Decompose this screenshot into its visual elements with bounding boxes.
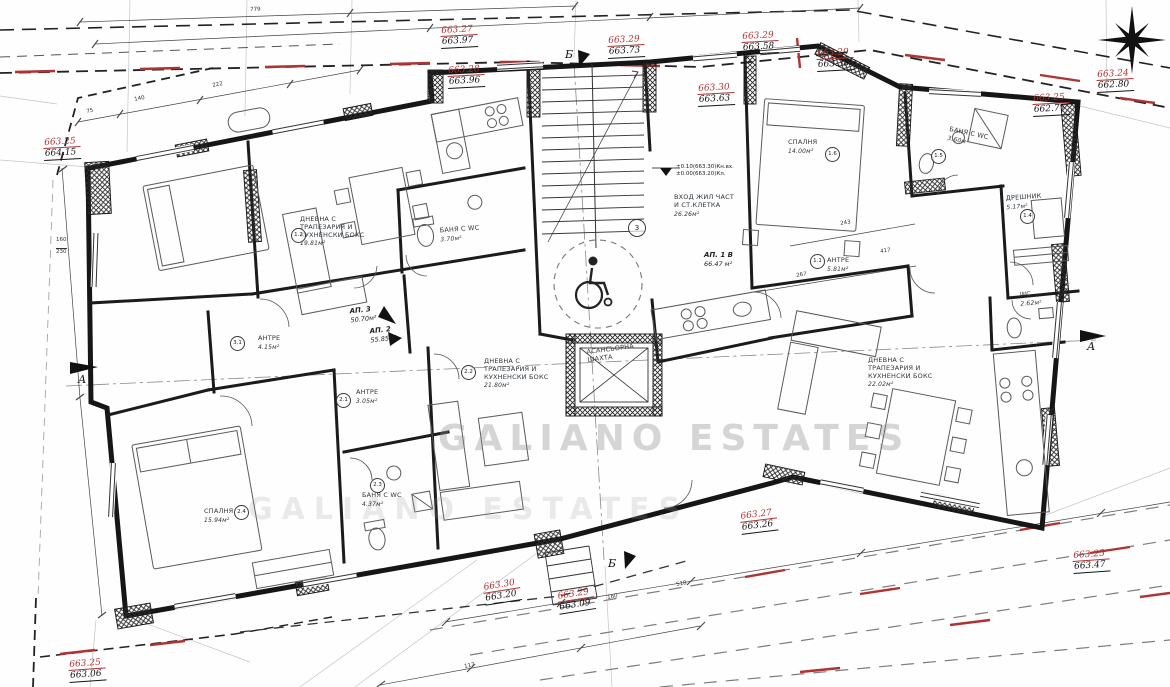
- room-name-line: БАНЯ С WC: [362, 492, 402, 500]
- apartment-label-2: АП. 2 55.85м²: [369, 325, 397, 345]
- room-name-line: WC: [1019, 290, 1041, 299]
- room-label-wc-e: WC 2.62м²: [1019, 290, 1042, 307]
- room-area: 5.81м²: [827, 266, 849, 273]
- level-note: ±0.10(663.30)Кн.вх. ±0.00(663.20)Кл.: [676, 164, 734, 178]
- room-number-circle: 1.2: [291, 228, 306, 243]
- room-label-living-nw: ДНЕВНА С ТРАПЕЗАРИЯ И КУХНЕНСКИ БОКС 19.…: [300, 216, 365, 248]
- room-number-circle: 1.5: [931, 149, 946, 164]
- room-name-line: СПАЛНЯ: [788, 139, 817, 147]
- stairs: [542, 64, 644, 248]
- elevation-marker: 663.25664.15: [43, 136, 81, 161]
- apartment-area: 66.47 м²: [704, 260, 733, 268]
- room-area: 4.37м²: [362, 501, 402, 508]
- room-label-hall-c: АНТРЕ 3.05м²: [356, 389, 378, 405]
- level-line: ±0.10(663.30)Кн.вх.: [676, 164, 734, 171]
- room-area: 21.80м²: [484, 382, 549, 389]
- elevation-lower: 662.77: [1033, 103, 1070, 116]
- room-number-circle: 1.1: [810, 254, 825, 269]
- dimension-label: 230: [56, 248, 67, 256]
- elevation-lower: 663.97: [441, 35, 478, 48]
- elevation-marker: 663.27663.26: [739, 508, 778, 535]
- room-number-circle: 1.4: [1020, 209, 1035, 224]
- elevation-marker: 663.29663.38: [816, 47, 854, 72]
- room-number-circle: 2.3: [370, 478, 385, 493]
- watermark-line2: GALIANO ESTATES: [248, 492, 689, 527]
- room-label-bedroom-ne: СПАЛНЯ 14.00м²: [788, 139, 817, 155]
- axis-letter-b-bottom: Б: [608, 558, 616, 569]
- elevation-lower: 662.80: [1097, 79, 1134, 92]
- elevation-lower: 663.58: [742, 41, 779, 54]
- room-name-line: КУХНЕНСКИ БОКС: [300, 232, 365, 240]
- room-area: 4.15м²: [258, 344, 280, 351]
- elevation-marker: 663.25663.06: [68, 657, 106, 682]
- room-area: 15.94м²: [204, 517, 233, 524]
- axis-letter-a-right: А: [1087, 341, 1095, 352]
- room-area: 22.02м²: [868, 381, 933, 388]
- elevation-marker: 663.28663.96: [447, 64, 485, 89]
- apartment-name: АП. 1 В: [704, 251, 733, 260]
- construction-lines: [0, 0, 1170, 687]
- room-label-entrance: ВХОД ЖИЛ ЧАСТ И СТ.КЛЕТКА 26.26м²: [674, 194, 734, 218]
- wheelchair-icon: [554, 240, 642, 328]
- room-label-hall-e: АНТРЕ 5.81м²: [827, 257, 849, 273]
- room-label-bath-sw: БАНЯ С WC 4.37м²: [362, 492, 402, 508]
- room-number-circle: 2.4: [234, 505, 249, 520]
- elevation-marker: 663.25662.77: [1032, 92, 1070, 117]
- elevation-marker: 663.29663.73: [607, 34, 645, 59]
- room-label-hall-w: АНТРЕ 4.15м²: [258, 335, 280, 351]
- elevation-marker: 663.29663.58: [741, 30, 779, 55]
- room-number-circle: 3: [628, 219, 646, 237]
- room-area: 14.00м²: [788, 148, 817, 155]
- room-name-line: АНТРЕ: [258, 335, 280, 343]
- dimension-label: 160: [56, 238, 67, 244]
- elevation-marker: 663.27663.97: [440, 24, 478, 49]
- elevation-lower: 663.73: [608, 45, 645, 58]
- room-number-circle: 1.6: [825, 147, 840, 162]
- elevation-lower: 663.96: [448, 75, 485, 88]
- floorplan-canvas: GALIANO ESTATES GALIANO ESTATES ДНЕВНА С…: [0, 0, 1170, 687]
- room-area: 2.62м²: [1020, 299, 1042, 308]
- room-area: 19.81м²: [300, 240, 365, 247]
- room-name-line: КУХНЕНСКИ БОКС: [868, 373, 933, 381]
- room-name-line: АНТРЕ: [356, 389, 378, 397]
- room-number-circle: 2.2: [461, 365, 476, 380]
- room-number-circle: 2.1: [336, 393, 351, 408]
- apartment-label-1: АП. 1 В 66.47 м²: [704, 251, 733, 268]
- room-label-living-e: ДНЕВНА С ТРАПЕЗАРИЯ И КУХНЕНСКИ БОКС 22.…: [868, 357, 933, 389]
- axis-letter-a-left: А: [78, 374, 86, 385]
- room-label-bedroom-sw: СПАЛНЯ 15.94м²: [204, 508, 233, 524]
- walls-interior: [90, 58, 1078, 562]
- apartment-label-3: АП. 3 50.70м²: [349, 305, 377, 325]
- room-name-line: СПАЛНЯ: [204, 508, 233, 516]
- room-name-line: АНТРЕ: [827, 257, 849, 265]
- elevation-marker: 663.25663.47: [1072, 548, 1110, 573]
- elevation-lower: 663.38: [817, 58, 854, 71]
- room-label-living-c: ДНЕВНА С ТРАПЕЗАРИЯ И КУХНЕНСКИ БОКС 21.…: [484, 358, 549, 390]
- room-name-line: И СТ.КЛЕТКА: [674, 202, 734, 210]
- room-number-circle: 3.1: [230, 336, 245, 351]
- axis-letter-b-top: Б: [565, 49, 573, 60]
- elevation-lower: 664.15: [44, 147, 81, 160]
- elevation-lower: 663.63: [698, 93, 735, 106]
- room-name-line: КУХНЕНСКИ БОКС: [484, 374, 549, 382]
- elevation-marker: 663.30663.63: [697, 82, 735, 107]
- watermark-line1: GALIANO ESTATES: [438, 418, 910, 459]
- room-area: 26.26м²: [674, 211, 734, 218]
- room-label-bath-nw: БАНЯ С WC 3.70м²: [439, 225, 480, 244]
- north-arrow-icon: [1098, 6, 1166, 74]
- room-label-closet: ДРЕШНИК 5.17м²: [1005, 193, 1042, 211]
- floorplan-drawing: [0, 0, 1170, 687]
- elevation-marker: 663.24662.80: [1096, 68, 1134, 93]
- room-area: 3.05м²: [356, 398, 378, 405]
- level-line: ±0.00(663.20)Кл.: [676, 171, 734, 178]
- dimension-label: 779: [250, 8, 261, 14]
